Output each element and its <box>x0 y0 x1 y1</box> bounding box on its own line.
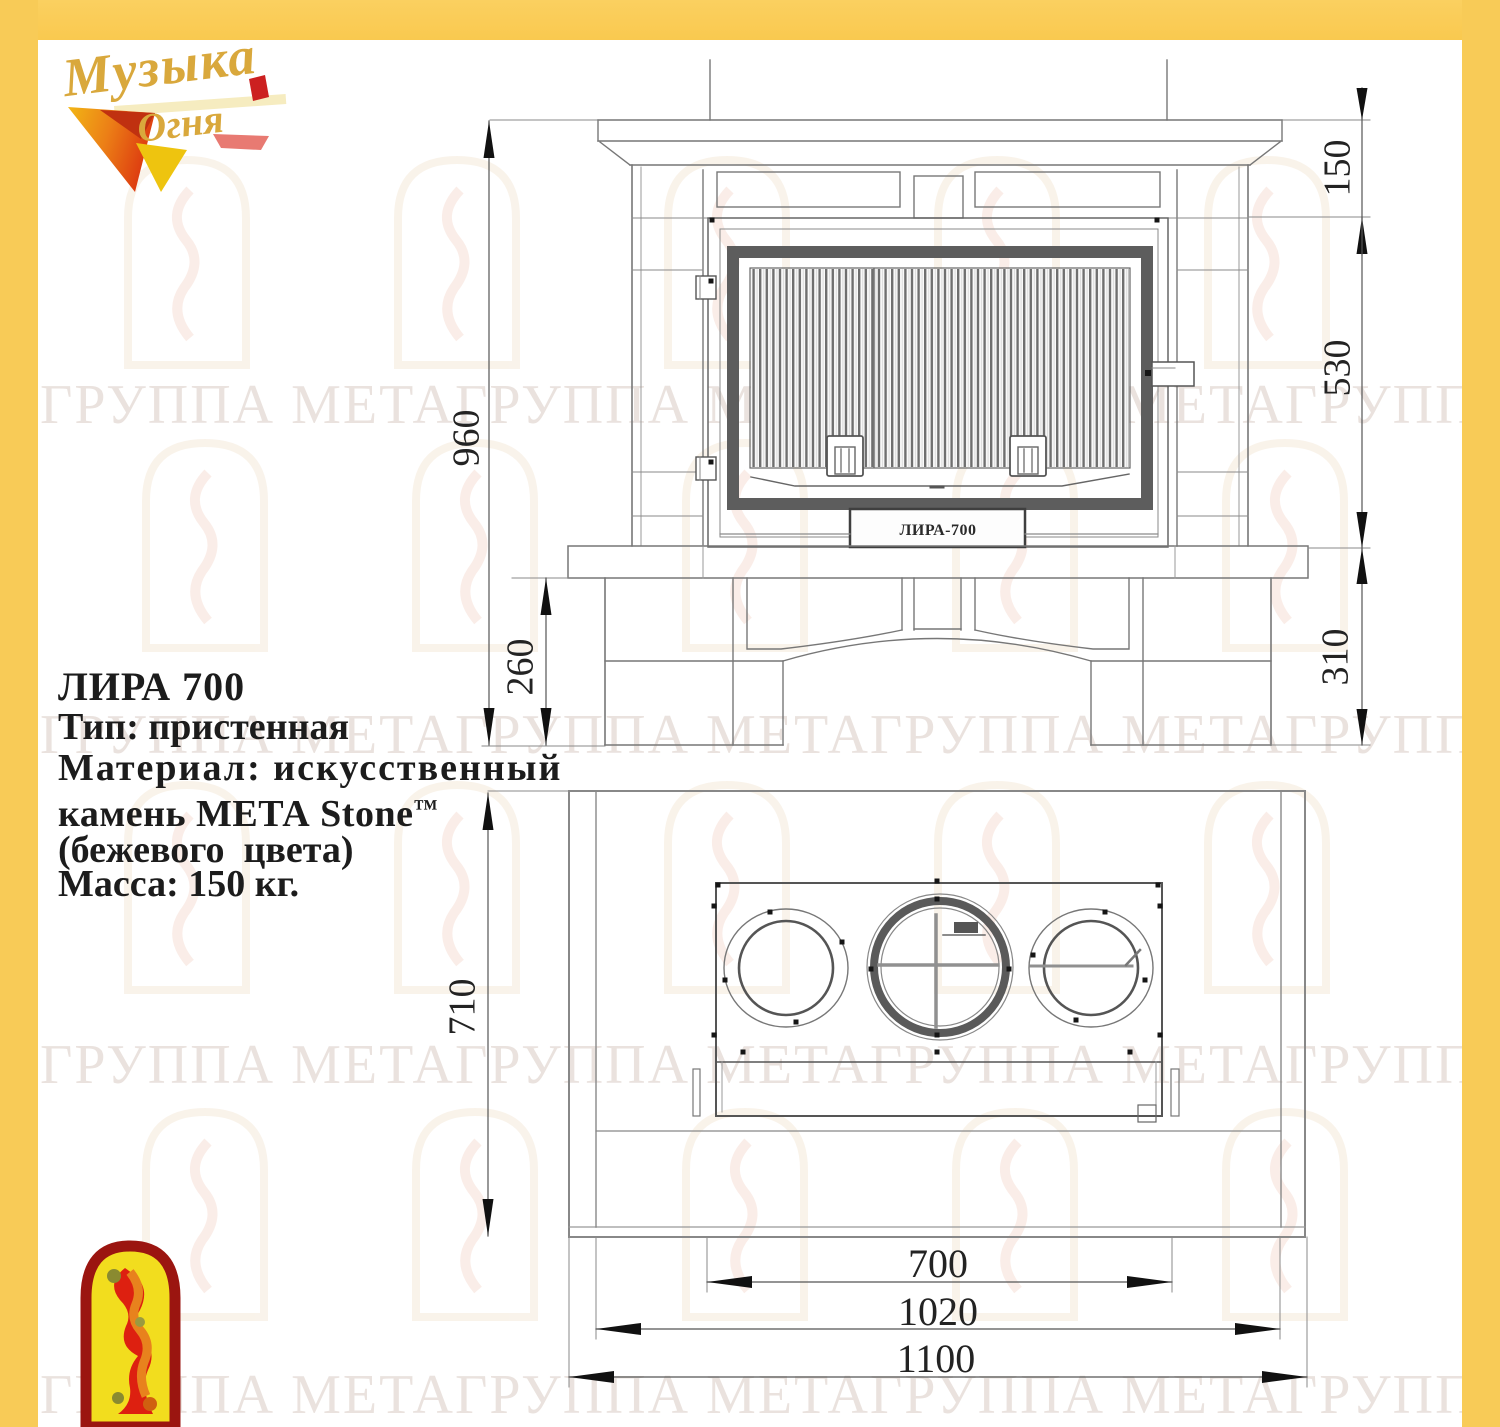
svg-text:310: 310 <box>1315 629 1357 686</box>
svg-text:710: 710 <box>442 979 484 1036</box>
svg-text:960: 960 <box>446 410 488 467</box>
svg-text:700: 700 <box>908 1241 968 1286</box>
svg-text:530: 530 <box>1317 340 1359 397</box>
svg-text:1020: 1020 <box>898 1289 978 1334</box>
svg-text:ЛИРА-700: ЛИРА-700 <box>900 522 977 539</box>
svg-text:1100: 1100 <box>897 1336 976 1381</box>
svg-text:150: 150 <box>1317 140 1359 197</box>
